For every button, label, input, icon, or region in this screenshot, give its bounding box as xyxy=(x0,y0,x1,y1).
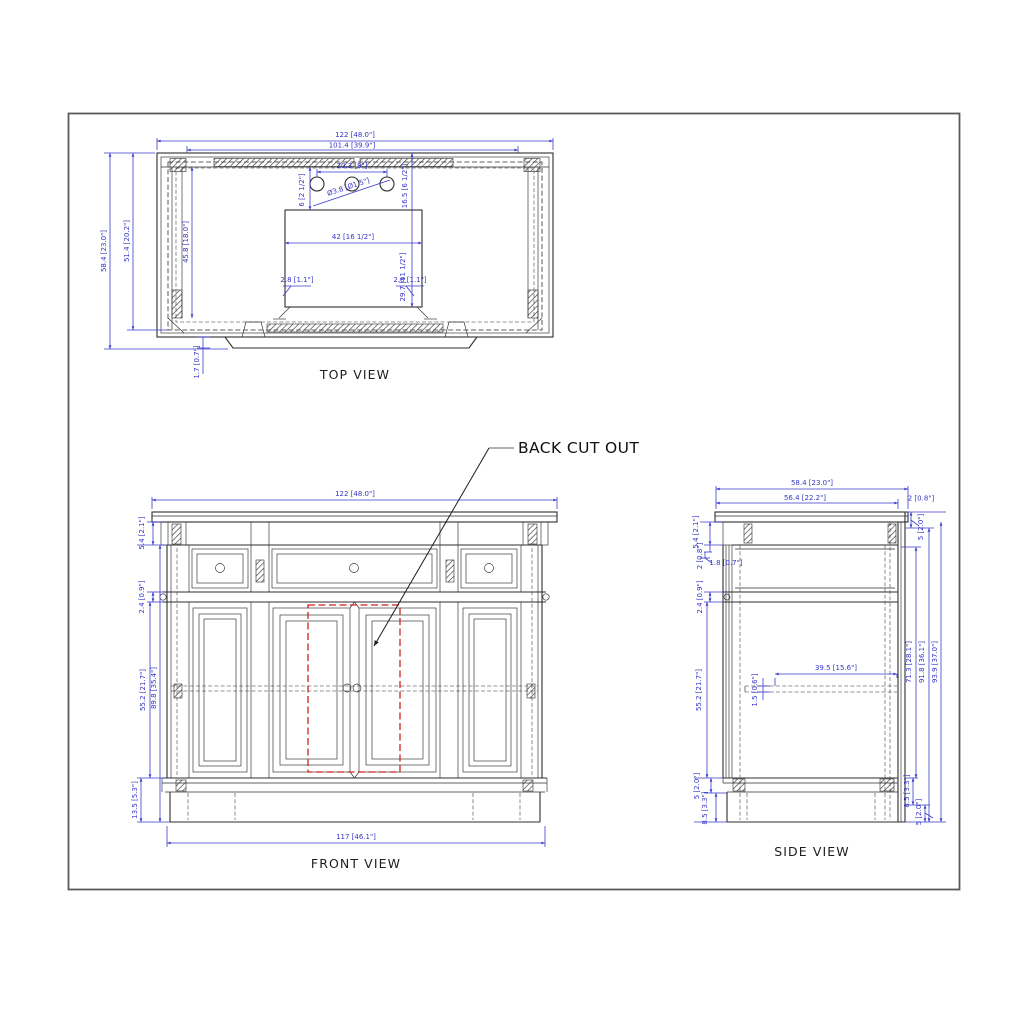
dim-side-base-right: 8.5 [3.3"] xyxy=(903,774,911,807)
dim-side-interior-height: 71.3 [28.1"] xyxy=(905,641,913,683)
dim-front-rail-height: 2.4 [0.9"] xyxy=(138,580,146,613)
dim-side-bottom-right: 5 [2.0"] xyxy=(915,798,923,825)
side-view-drawing xyxy=(715,512,908,822)
dim-top-overall-depth: 58.4 [23.0"] xyxy=(100,230,108,272)
drawer-knob-left xyxy=(216,564,225,573)
dim-front-cornice-height: 5.4 [2.1"] xyxy=(138,516,146,549)
dim-top-overall-width: 122 [48.0"] xyxy=(335,131,375,139)
door-center-right xyxy=(359,608,436,772)
drawer-center xyxy=(272,549,437,588)
front-view-title: FRONT VIEW xyxy=(311,856,401,871)
dim-front-base-height: 13.5 [5.3"] xyxy=(131,781,139,819)
door-left xyxy=(193,608,247,772)
dim-side-top-gap: 2 [0.8"] xyxy=(696,542,704,569)
dim-side-base-left-upper: 5 [2.0"] xyxy=(693,772,701,799)
dim-side-back-panel: 2 [0.8"] xyxy=(908,495,935,503)
dim-top-corner-left: 2.8 [1.1"] xyxy=(280,276,313,284)
door-center-left xyxy=(273,608,350,772)
faucet-hole-left xyxy=(310,177,324,191)
dim-side-shelf-depth: 39.5 [15.6"] xyxy=(815,664,857,672)
dim-top-faucet-hole-dia: Ø3.8 [Ø1.5"] xyxy=(326,176,371,197)
dim-side-lip: 1.8 [0.7"] xyxy=(709,559,742,567)
dim-side-shelf-thickness: 1.5 [0.6"] xyxy=(751,673,759,706)
back-cutout-label: BACK CUT OUT xyxy=(518,439,639,457)
dim-front-door-height: 55.2 [21.7"] xyxy=(139,669,147,711)
dim-side-base-left-lower: 8.5 [3.3"] xyxy=(701,791,709,824)
dim-top-faucet-spacing: 20.3 [8"] xyxy=(337,162,368,170)
dim-front-base-width: 117 [46.1"] xyxy=(336,833,376,841)
dim-top-sink-setback: 16.5 [6 1/2"] xyxy=(401,164,409,209)
dim-top-counter-depth: 51.4 [20.2"] xyxy=(123,220,131,262)
dim-top-sink-width: 42 [16 1/2"] xyxy=(332,233,374,241)
front-view-dimensions: 122 [48.0"] 117 [46.1"] 5.4 [2.1"] 2.4 [… xyxy=(131,490,557,847)
dim-top-back-rail-width: 101.4 [39.9"] xyxy=(329,142,376,150)
side-view-dimensions: 58.4 [23.0"] 56.4 [22.2"] 2 [0.8"] 5.4 [… xyxy=(692,479,946,825)
drawer-right xyxy=(461,549,517,588)
door-right xyxy=(463,608,517,772)
dim-side-rail-height: 2.4 [0.9"] xyxy=(696,580,704,613)
dim-top-back-step: 1.7 [0.7"] xyxy=(193,345,201,378)
back-cutout-outline xyxy=(308,605,400,772)
drawer-knob-right xyxy=(485,564,494,573)
side-view-title: SIDE VIEW xyxy=(774,844,850,859)
dim-side-body-height: 91.8 [36.1"] xyxy=(918,641,926,683)
dim-top-corner-right: 2.8 [1.1"] xyxy=(393,276,426,284)
dim-top-faucet-setback: 6 [2 1/2"] xyxy=(298,173,306,207)
drawer-knob-center xyxy=(350,564,359,573)
drawer-left xyxy=(192,549,248,588)
dim-top-interior-depth: 45.8 [18.0"] xyxy=(182,221,190,263)
cabinet-technical-drawing: 122 [48.0"] 101.4 [39.9"] 58.4 [23.0"] 5… xyxy=(0,0,1024,1024)
dim-side-overall-height: 93.9 [37.0"] xyxy=(931,641,939,683)
dim-side-door-height: 55.2 [21.7"] xyxy=(695,669,703,711)
dim-side-overall-depth: 58.4 [23.0"] xyxy=(791,479,833,487)
dim-side-top-right: 5 [2.0"] xyxy=(917,513,925,540)
dim-side-top-depth: 56.4 [22.2"] xyxy=(784,494,826,502)
blueprint-page: 122 [48.0"] 101.4 [39.9"] 58.4 [23.0"] 5… xyxy=(0,0,1024,1024)
dim-front-overall-width: 122 [48.0"] xyxy=(335,490,375,498)
dim-front-body-height: 89.8 [35.4"] xyxy=(150,667,158,709)
front-view-drawing xyxy=(152,512,557,822)
faucet-hole-right xyxy=(380,177,394,191)
top-view-title: TOP VIEW xyxy=(319,367,390,382)
